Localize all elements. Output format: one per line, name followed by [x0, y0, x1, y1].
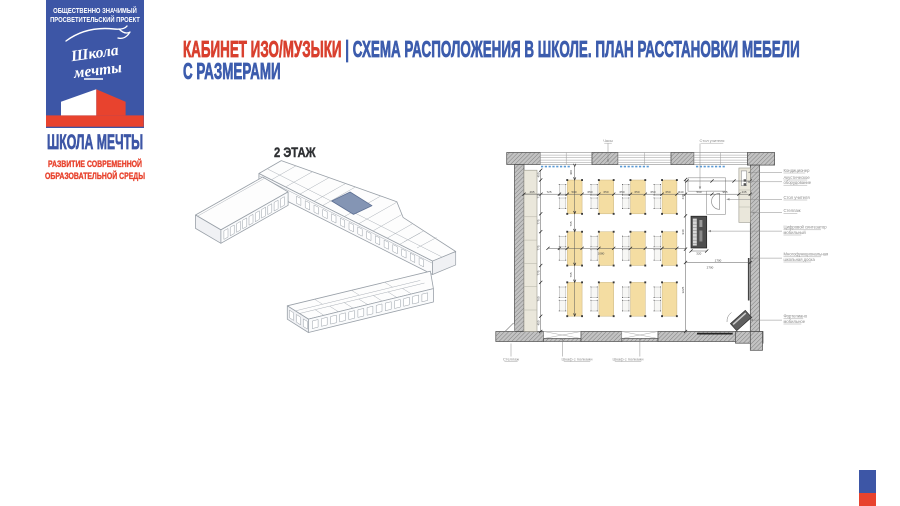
svg-text:1700: 1700 — [715, 258, 722, 262]
svg-text:775: 775 — [536, 193, 540, 198]
svg-text:760: 760 — [536, 296, 540, 301]
svg-text:650: 650 — [603, 190, 608, 194]
svg-text:590: 590 — [696, 190, 701, 194]
svg-text:оборудование: оборудование — [784, 180, 812, 185]
svg-text:3225: 3225 — [681, 286, 685, 293]
svg-text:Кондиционер: Кондиционер — [784, 168, 811, 173]
svg-text:Стеллаж: Стеллаж — [503, 357, 520, 362]
svg-text:Стеллаж: Стеллаж — [784, 208, 801, 213]
svg-text:400: 400 — [569, 170, 573, 175]
svg-text:Часы: Часы — [603, 138, 613, 143]
svg-text:765: 765 — [569, 272, 573, 277]
svg-text:650: 650 — [634, 190, 639, 194]
svg-text:650: 650 — [665, 190, 670, 194]
svg-text:940: 940 — [681, 229, 685, 234]
svg-text:650: 650 — [619, 190, 624, 194]
svg-text:450: 450 — [536, 320, 540, 325]
svg-text:320: 320 — [696, 252, 701, 256]
svg-text:440: 440 — [681, 194, 685, 199]
svg-text:650: 650 — [587, 190, 592, 194]
svg-text:765: 765 — [569, 221, 573, 226]
svg-text:650: 650 — [650, 190, 655, 194]
svg-text:540: 540 — [678, 190, 683, 194]
svg-text:500: 500 — [571, 190, 576, 194]
svg-text:Стол учителя: Стол учителя — [700, 138, 725, 143]
svg-text:Шкаф с полками: Шкаф с полками — [613, 357, 644, 362]
svg-text:мобильный: мобильный — [784, 230, 807, 235]
svg-text:2700: 2700 — [707, 265, 714, 269]
svg-text:725: 725 — [546, 190, 551, 194]
svg-text:Стол учителя: Стол учителя — [784, 195, 810, 200]
svg-text:775: 775 — [536, 219, 540, 224]
svg-text:школьная доска: школьная доска — [784, 257, 816, 262]
svg-text:435: 435 — [741, 190, 746, 194]
svg-text:1080: 1080 — [598, 252, 605, 256]
svg-text:495: 495 — [529, 190, 534, 194]
svg-text:мобильное: мобильное — [784, 319, 806, 324]
svg-text:775: 775 — [536, 270, 540, 275]
svg-text:Шкаф с полками: Шкаф с полками — [562, 357, 593, 362]
svg-text:450: 450 — [536, 172, 540, 177]
svg-text:965: 965 — [722, 190, 727, 194]
svg-text:775: 775 — [536, 245, 540, 250]
